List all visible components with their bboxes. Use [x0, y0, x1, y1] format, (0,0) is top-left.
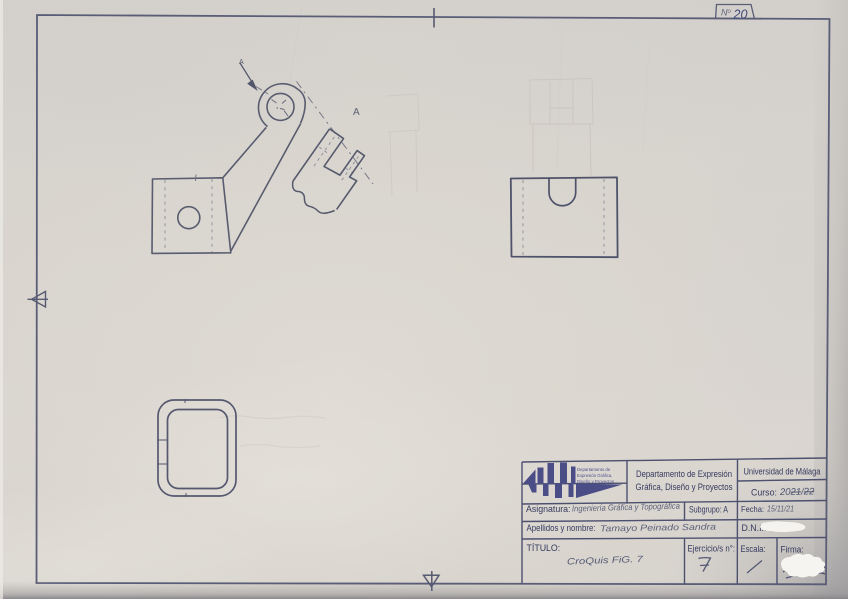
svg-text:TÍTULO:: TÍTULO:: [527, 543, 561, 553]
svg-text:A: A: [353, 107, 360, 118]
svg-text:Ejercicio/s n°:: Ejercicio/s n°:: [688, 544, 736, 554]
svg-text:15/11/21: 15/11/21: [767, 505, 794, 514]
svg-text:Apellidos y nombre:: Apellidos y nombre:: [527, 523, 596, 533]
svg-text:A: A: [239, 59, 244, 66]
svg-text:Departamento de Expresión: Departamento de Expresión: [636, 469, 732, 479]
svg-text:Firma:: Firma:: [781, 545, 804, 555]
svg-text:Asignatura:: Asignatura:: [526, 504, 571, 514]
svg-text:Curso:: Curso:: [751, 488, 777, 498]
svg-text:Expresión Gráfica,: Expresión Gráfica,: [577, 473, 612, 478]
svg-text:2021/22: 2021/22: [779, 486, 815, 498]
svg-text:Fecha:: Fecha:: [741, 504, 764, 514]
svg-text:Departamento de: Departamento de: [577, 467, 611, 472]
svg-text:20: 20: [733, 8, 748, 22]
svg-text:Escala:: Escala:: [741, 544, 766, 554]
svg-text:Gráfica, Diseño y Proyectos: Gráfica, Diseño y Proyectos: [636, 482, 733, 492]
svg-text:Tamayo Peinado Sandra: Tamayo Peinado Sandra: [600, 521, 716, 533]
svg-text:Subgrupo: A: Subgrupo: A: [689, 505, 728, 515]
svg-text:Diseño y Proyectos: Diseño y Proyectos: [577, 479, 614, 484]
svg-text:Universidad de Málaga: Universidad de Málaga: [744, 467, 821, 477]
